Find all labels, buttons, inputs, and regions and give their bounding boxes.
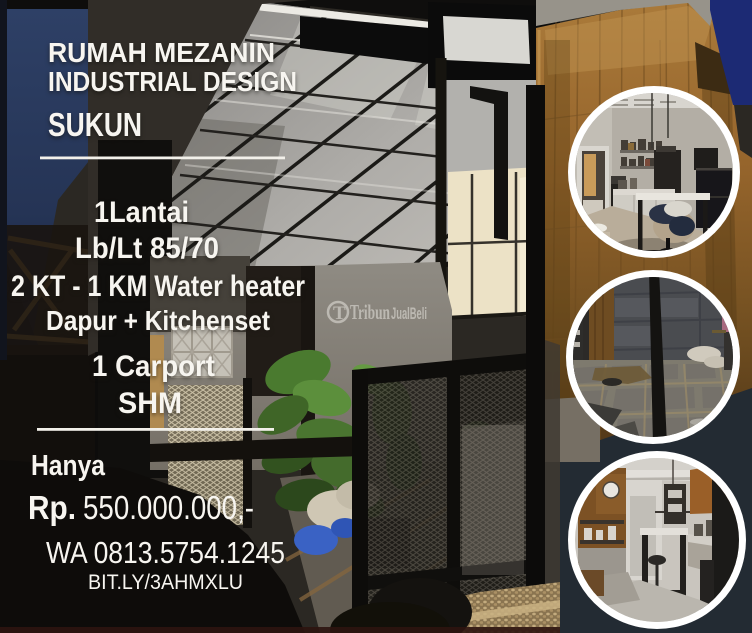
svg-text:Rp.: Rp. [28, 489, 76, 526]
svg-text:Dapur + Kitchenset: Dapur + Kitchenset [46, 305, 270, 336]
svg-text:1Lantai: 1Lantai [94, 196, 189, 229]
svg-text:T: T [333, 303, 346, 324]
svg-text:Hanya: Hanya [31, 450, 106, 482]
svg-text:RUMAH MEZANIN: RUMAH MEZANIN [48, 37, 275, 68]
svg-text:1 Carport: 1 Carport [92, 350, 215, 383]
svg-text:SUKUN: SUKUN [48, 106, 142, 143]
svg-text:2 KT - 1 KM Water heater: 2 KT - 1 KM Water heater [11, 270, 305, 303]
svg-text:JualBeli: JualBeli [391, 304, 427, 323]
svg-text:550.000.000,-: 550.000.000,- [83, 489, 254, 526]
svg-text:Tribun: Tribun [350, 300, 390, 324]
svg-text:SHM: SHM [118, 387, 182, 420]
svg-text:Lb/Lt 85/70: Lb/Lt 85/70 [75, 232, 219, 265]
svg-text:BIT.LY/3AHMXLU: BIT.LY/3AHMXLU [88, 571, 243, 594]
svg-text:INDUSTRIAL DESIGN: INDUSTRIAL DESIGN [48, 66, 297, 97]
svg-text:WA 0813.5754.1245: WA 0813.5754.1245 [46, 535, 285, 570]
